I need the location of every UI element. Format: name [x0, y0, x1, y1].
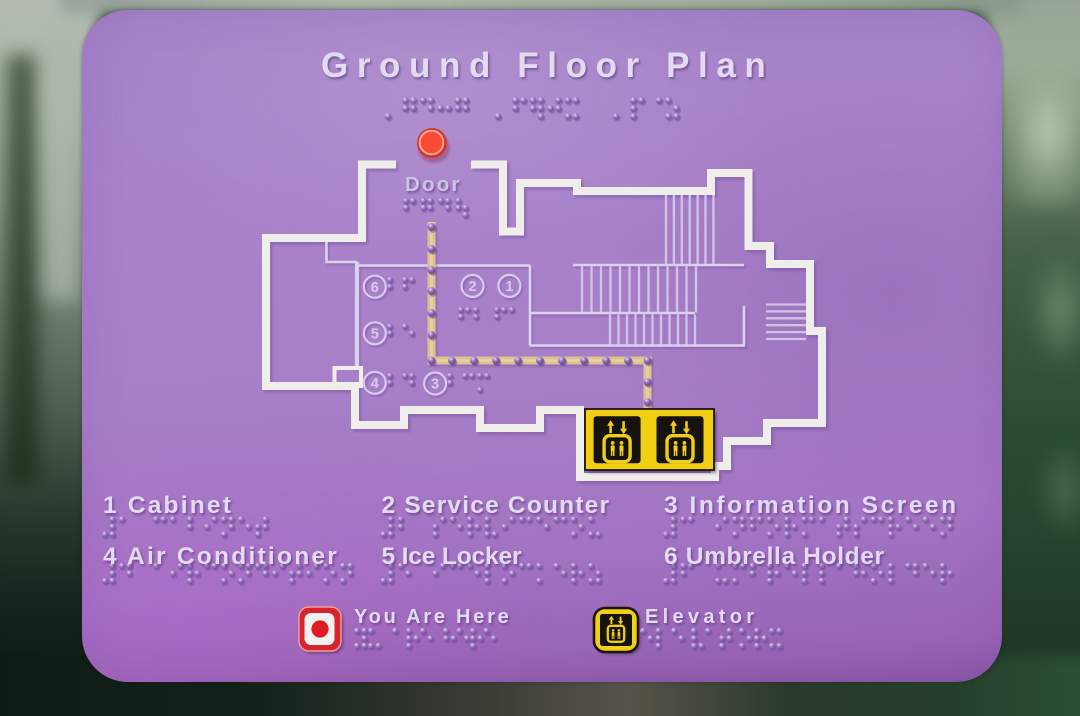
- svg-text:4: 4: [371, 376, 379, 392]
- svg-text:3: 3: [431, 377, 439, 393]
- svg-text:5: 5: [371, 327, 379, 343]
- svg-text:1: 1: [505, 279, 513, 295]
- svg-text:6: 6: [371, 280, 379, 296]
- svg-text:2: 2: [468, 279, 476, 295]
